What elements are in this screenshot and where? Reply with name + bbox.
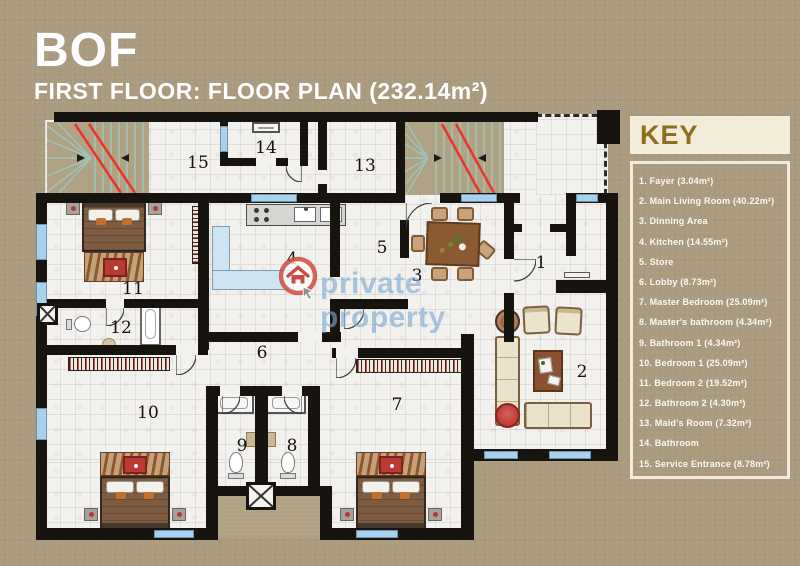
door-arc (176, 355, 196, 375)
rc (379, 456, 403, 474)
shape (461, 334, 474, 540)
room-label-14: 14 (255, 138, 277, 158)
dining-chair (411, 235, 425, 252)
window (154, 530, 194, 538)
window (484, 451, 518, 459)
cu (372, 492, 382, 499)
bed (356, 476, 426, 530)
staircase-right (398, 122, 504, 195)
shaft-box (37, 303, 58, 325)
shape (220, 158, 288, 166)
shape (286, 166, 302, 182)
dining-chair (457, 207, 474, 221)
paper (538, 357, 553, 374)
door-arc (336, 358, 356, 378)
shape (330, 193, 340, 277)
shape (296, 280, 301, 284)
room-label-5: 5 (377, 238, 388, 258)
window (251, 194, 297, 202)
room-label-15: 15 (187, 153, 209, 173)
rug (84, 252, 144, 282)
shape (318, 112, 327, 170)
room-label-8: 8 (287, 436, 298, 456)
sink-counter (252, 122, 280, 133)
room-label-13: 13 (354, 156, 376, 176)
room-label-6: 6 (257, 343, 268, 363)
tank (66, 319, 72, 330)
shape (222, 396, 240, 414)
shape (198, 193, 209, 350)
ottoman (495, 403, 520, 428)
rc (103, 258, 127, 277)
wardrobe (68, 357, 170, 371)
cu (144, 492, 154, 499)
cu (96, 218, 106, 225)
dot (448, 242, 453, 247)
cu (400, 492, 410, 499)
stove-burner (254, 208, 259, 213)
room-label-10: 10 (137, 403, 159, 423)
kitchen-counter-blue (212, 226, 230, 272)
shape (597, 110, 620, 144)
key-item: 5. Store (639, 252, 781, 272)
private-property-logo (277, 256, 321, 300)
key-item: 10. Bedroom 1 (25.09m²) (639, 353, 781, 373)
window (549, 451, 591, 459)
shape (176, 355, 196, 375)
nightstand (172, 508, 186, 521)
key-item: 6. Lobby (8.73m²) (639, 272, 781, 292)
shape (308, 386, 320, 486)
toilet (66, 316, 92, 333)
rug (356, 452, 426, 476)
bed (100, 476, 170, 530)
door-opening (336, 348, 358, 358)
shaft-box (246, 482, 276, 510)
door-opening (176, 345, 198, 355)
armchair (522, 305, 550, 334)
nightstand (340, 508, 354, 521)
kitchen-sink (294, 207, 316, 222)
stove-burner (254, 217, 259, 222)
dining-table (425, 221, 481, 267)
shape (504, 224, 522, 232)
shape (36, 193, 404, 203)
bed (82, 200, 146, 252)
door-opening (298, 332, 322, 342)
key-item: 4. Kitchen (14.55m²) (639, 232, 781, 252)
dining-chair (457, 267, 474, 281)
key-item: 2. Main Living Room (40.22m²) (639, 191, 781, 211)
nightstand (84, 508, 98, 521)
dining-chair (431, 207, 448, 221)
toilet (280, 452, 296, 480)
staircase-left (47, 122, 149, 195)
door-arc (514, 259, 536, 293)
shape (550, 224, 566, 232)
key-item: 11. Bedroom 2 (19.52m²) (639, 373, 781, 393)
rc (123, 456, 147, 474)
dot (440, 248, 445, 253)
key-item: 13. Maid's Room (7.32m²) (639, 413, 781, 433)
rug (100, 452, 170, 476)
key-item: 9. Bathroom 1 (4.34m²) (639, 333, 781, 353)
cu (116, 492, 126, 499)
key-item: 8. Master's bathroom (4.34m²) (639, 312, 781, 332)
coffee-table (533, 350, 563, 392)
shape (54, 112, 538, 122)
floor-plan-page: BOF FIRST FLOOR: FLOOR PLAN (232.14m²) (0, 0, 800, 566)
shape (514, 259, 536, 281)
window (461, 194, 497, 202)
key-heading: KEY (630, 116, 790, 154)
nightstand (66, 202, 80, 215)
window (576, 194, 598, 202)
key-item: 14. Bathroom (639, 433, 781, 453)
shape (249, 485, 273, 507)
wardrobe (356, 359, 462, 373)
console-shelf (564, 272, 590, 278)
window (36, 224, 47, 260)
door-opening (256, 158, 276, 166)
dot (459, 243, 466, 250)
stove-burner (264, 208, 269, 213)
door-arc (286, 166, 302, 182)
stove-burner (264, 217, 269, 222)
shape (504, 293, 514, 342)
key-item: 15. Service Entrance (8.78m²) (639, 454, 781, 474)
room-label-9: 9 (237, 436, 248, 456)
dot (541, 361, 545, 365)
nightstand (428, 508, 442, 521)
room-label-11: 11 (122, 279, 144, 299)
room-label-2: 2 (577, 362, 588, 382)
shape (406, 203, 432, 229)
shape (284, 396, 302, 414)
room-label-1: 1 (536, 253, 547, 273)
shape (606, 193, 618, 459)
shape (566, 193, 576, 256)
key-list: 1. Fayer (3.04m²)2. Main Living Room (40… (630, 161, 790, 479)
cu (122, 218, 132, 225)
tank (280, 473, 296, 479)
key-item: 12. Bathroom 2 (4.30m²) (639, 393, 781, 413)
door-opening (106, 299, 124, 308)
door-arc (284, 396, 302, 414)
bowl (74, 316, 91, 332)
key-item: 3. Dinning Area (639, 211, 781, 231)
door-arc (222, 396, 240, 414)
shape (206, 386, 218, 486)
watermark-text: private property (320, 267, 446, 335)
shape (318, 184, 327, 203)
shape (396, 112, 405, 203)
dot (454, 236, 461, 243)
tank (228, 473, 244, 479)
paper (547, 375, 561, 387)
key-item: 1. Fayer (3.04m²) (639, 171, 781, 191)
shape (556, 280, 618, 293)
bathtub (140, 304, 161, 346)
door-arc (406, 203, 432, 229)
shape (300, 120, 308, 166)
toilet (228, 452, 244, 480)
sofa (524, 402, 592, 429)
shape (336, 358, 356, 378)
room-label-7: 7 (392, 395, 403, 415)
window (36, 408, 47, 440)
room-label-12: 12 (110, 318, 132, 338)
armchair (554, 306, 582, 335)
shape (255, 386, 268, 486)
window (220, 126, 228, 152)
shape (40, 306, 55, 322)
door-opening (220, 386, 240, 396)
door-opening (282, 386, 302, 396)
window (356, 530, 398, 538)
key-item: 7. Master Bedroom (25.09m²) (639, 292, 781, 312)
nightstand (148, 202, 162, 215)
